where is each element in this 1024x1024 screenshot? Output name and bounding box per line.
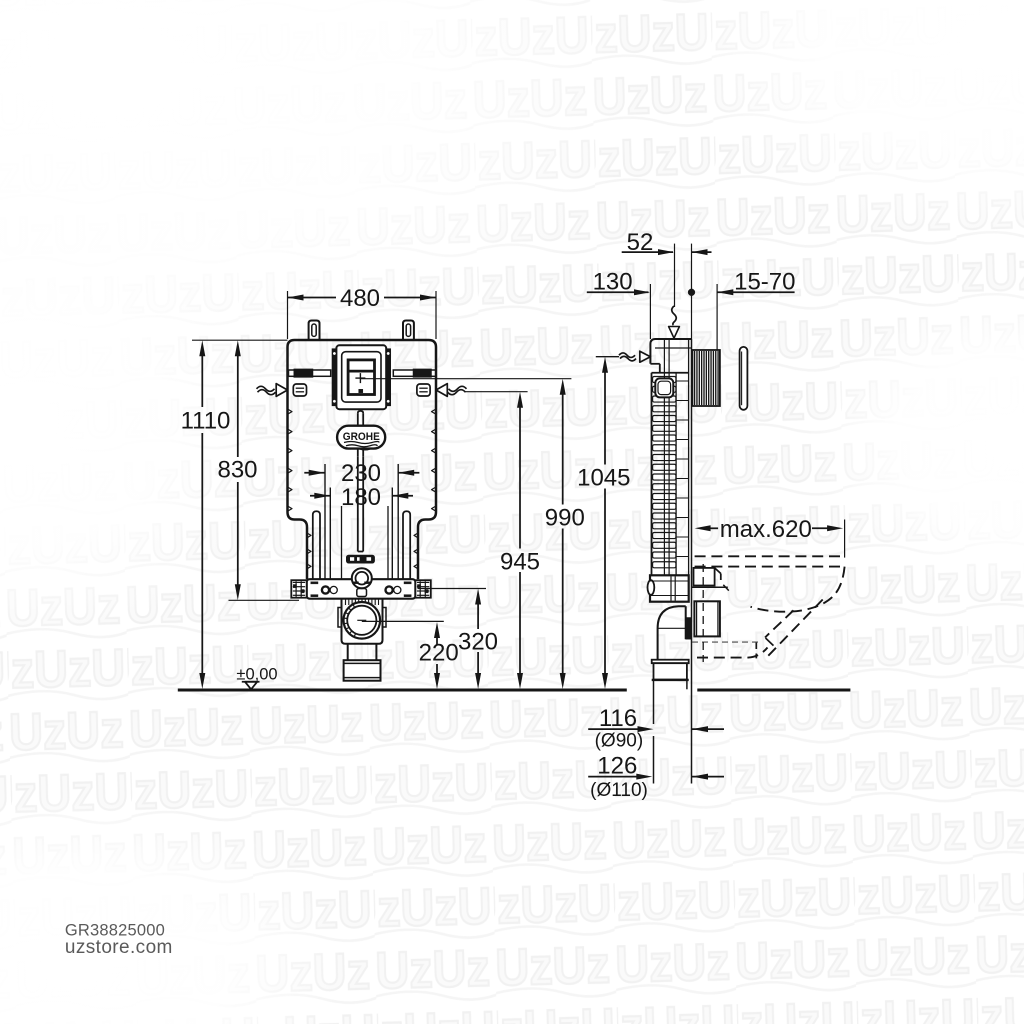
svg-text:(Ø90): (Ø90) <box>595 730 644 751</box>
svg-text:130: 130 <box>593 268 633 295</box>
svg-text:220: 220 <box>419 639 459 666</box>
svg-text:945: 945 <box>500 548 540 575</box>
svg-text:uzstore.com: uzstore.com <box>65 937 173 958</box>
svg-text:320: 320 <box>458 629 498 656</box>
svg-text:180: 180 <box>341 484 381 511</box>
svg-text:±0,00: ±0,00 <box>236 666 277 684</box>
svg-text:1110: 1110 <box>181 408 231 435</box>
svg-text:52: 52 <box>627 229 654 256</box>
svg-text:max.620: max.620 <box>720 516 812 543</box>
svg-text:15-70: 15-70 <box>734 268 795 295</box>
svg-text:116: 116 <box>599 705 637 732</box>
svg-text:1045: 1045 <box>577 464 630 491</box>
svg-text:126: 126 <box>597 753 637 780</box>
svg-text:830: 830 <box>217 457 257 484</box>
svg-text:480: 480 <box>340 285 380 312</box>
svg-text:(Ø110): (Ø110) <box>590 780 648 801</box>
svg-text:990: 990 <box>545 504 585 531</box>
